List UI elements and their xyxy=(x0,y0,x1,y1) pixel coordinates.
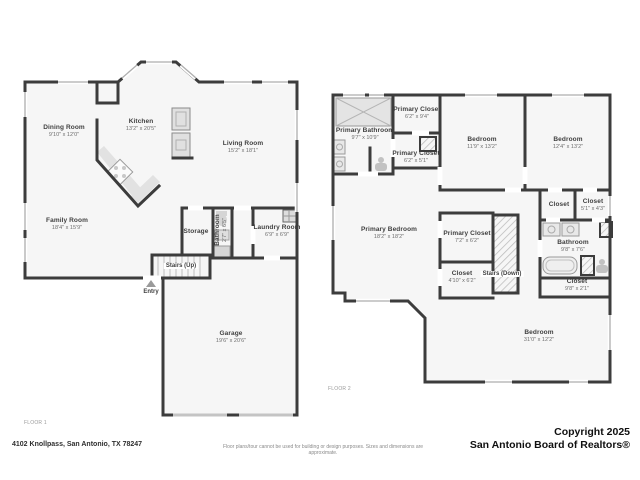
property-address: 4102 Knollpass, San Antonio, TX 78247 xyxy=(12,441,142,448)
stairs-up-label: Stairs (Up) xyxy=(164,263,198,269)
floor-plan-canvas: Dining Room 9'10" x 12'0" Kitchen 13'2" … xyxy=(0,0,640,480)
floor2-tag: FLOOR 2 xyxy=(328,386,351,392)
floor-underlays xyxy=(25,62,610,415)
entry-arrow-icon xyxy=(146,280,156,287)
copyright-line2: San Antonio Board of Realtors® xyxy=(470,439,630,452)
disclaimer-text: Floor plans/tour cannot be used for buil… xyxy=(218,444,428,456)
copyright-text: Copyright 2025 San Antonio Board of Real… xyxy=(470,426,630,452)
floor1-tag: FLOOR 1 xyxy=(24,420,47,426)
copyright-line1: Copyright 2025 xyxy=(470,426,630,439)
entry-label: Entry xyxy=(143,289,158,295)
floor-plan-drawing xyxy=(0,0,640,480)
stairs-down-label: Stairs (Down) xyxy=(481,271,524,277)
